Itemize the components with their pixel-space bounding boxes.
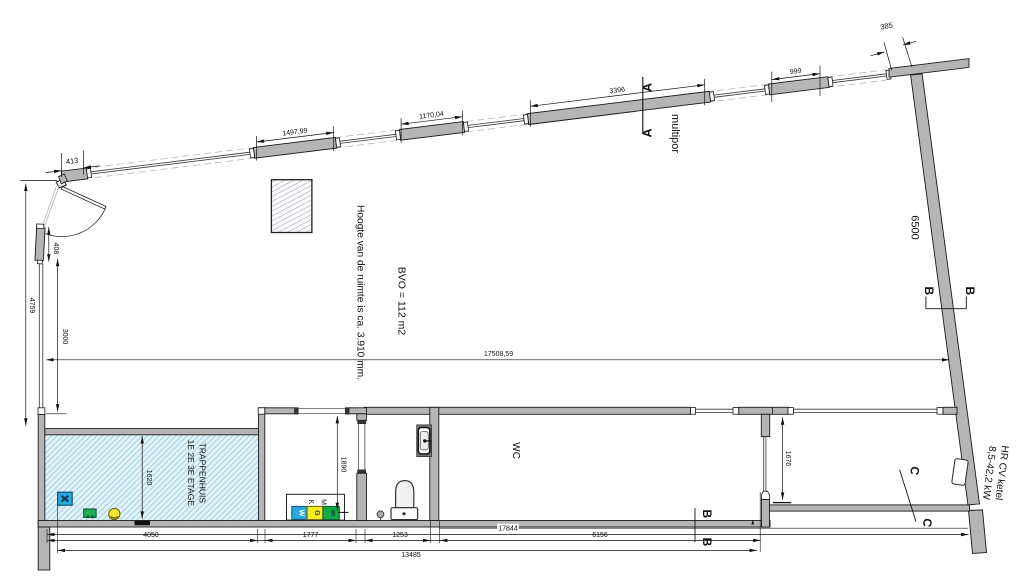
svg-text:1E 2E 3E ETAGE: 1E 2E 3E ETAGE xyxy=(186,440,196,507)
svg-text:G: G xyxy=(313,510,320,516)
svg-text:K: K xyxy=(307,499,314,504)
svg-text:1890: 1890 xyxy=(340,457,347,473)
svg-text:408: 408 xyxy=(52,243,59,255)
svg-text:C: C xyxy=(920,517,936,529)
svg-text:4050: 4050 xyxy=(143,532,159,539)
svg-text:1777: 1777 xyxy=(303,532,319,539)
svg-text:3396: 3396 xyxy=(609,86,625,95)
svg-text:6500: 6500 xyxy=(909,215,921,239)
svg-text:17508,59: 17508,59 xyxy=(484,351,513,358)
svg-text:B: B xyxy=(922,287,936,296)
svg-text:6156: 6156 xyxy=(592,532,608,539)
svg-text:1620: 1620 xyxy=(145,470,152,486)
svg-text:Hoogte van de ruimte is ca. 3.: Hoogte van de ruimte is ca. 3.910 mm. xyxy=(355,205,366,380)
svg-text:13485: 13485 xyxy=(401,552,421,559)
svg-text:413: 413 xyxy=(65,156,79,166)
svg-text:B: B xyxy=(963,287,977,296)
svg-text:B: B xyxy=(700,509,714,518)
svg-text:3000: 3000 xyxy=(61,329,68,345)
svg-text:A: A xyxy=(641,83,655,92)
svg-text:385: 385 xyxy=(880,21,894,32)
svg-text:4759: 4759 xyxy=(28,298,35,314)
svg-text:BVO = 112 m2: BVO = 112 m2 xyxy=(396,267,408,336)
svg-text:WC: WC xyxy=(510,442,521,459)
svg-text:999: 999 xyxy=(789,68,802,76)
svg-text:multipor: multipor xyxy=(669,114,681,153)
svg-text:A: A xyxy=(641,128,655,137)
svg-text:W: W xyxy=(298,510,305,517)
svg-text:m: m xyxy=(329,510,336,516)
svg-text:1253: 1253 xyxy=(392,532,408,539)
svg-text:17844: 17844 xyxy=(498,526,518,533)
svg-text:1676: 1676 xyxy=(784,451,791,467)
svg-text:B: B xyxy=(700,538,714,547)
svg-text:C: C xyxy=(907,465,923,477)
svg-text:M: M xyxy=(319,499,326,505)
svg-text:TRAPPENHUIS: TRAPPENHUIS xyxy=(198,443,208,504)
